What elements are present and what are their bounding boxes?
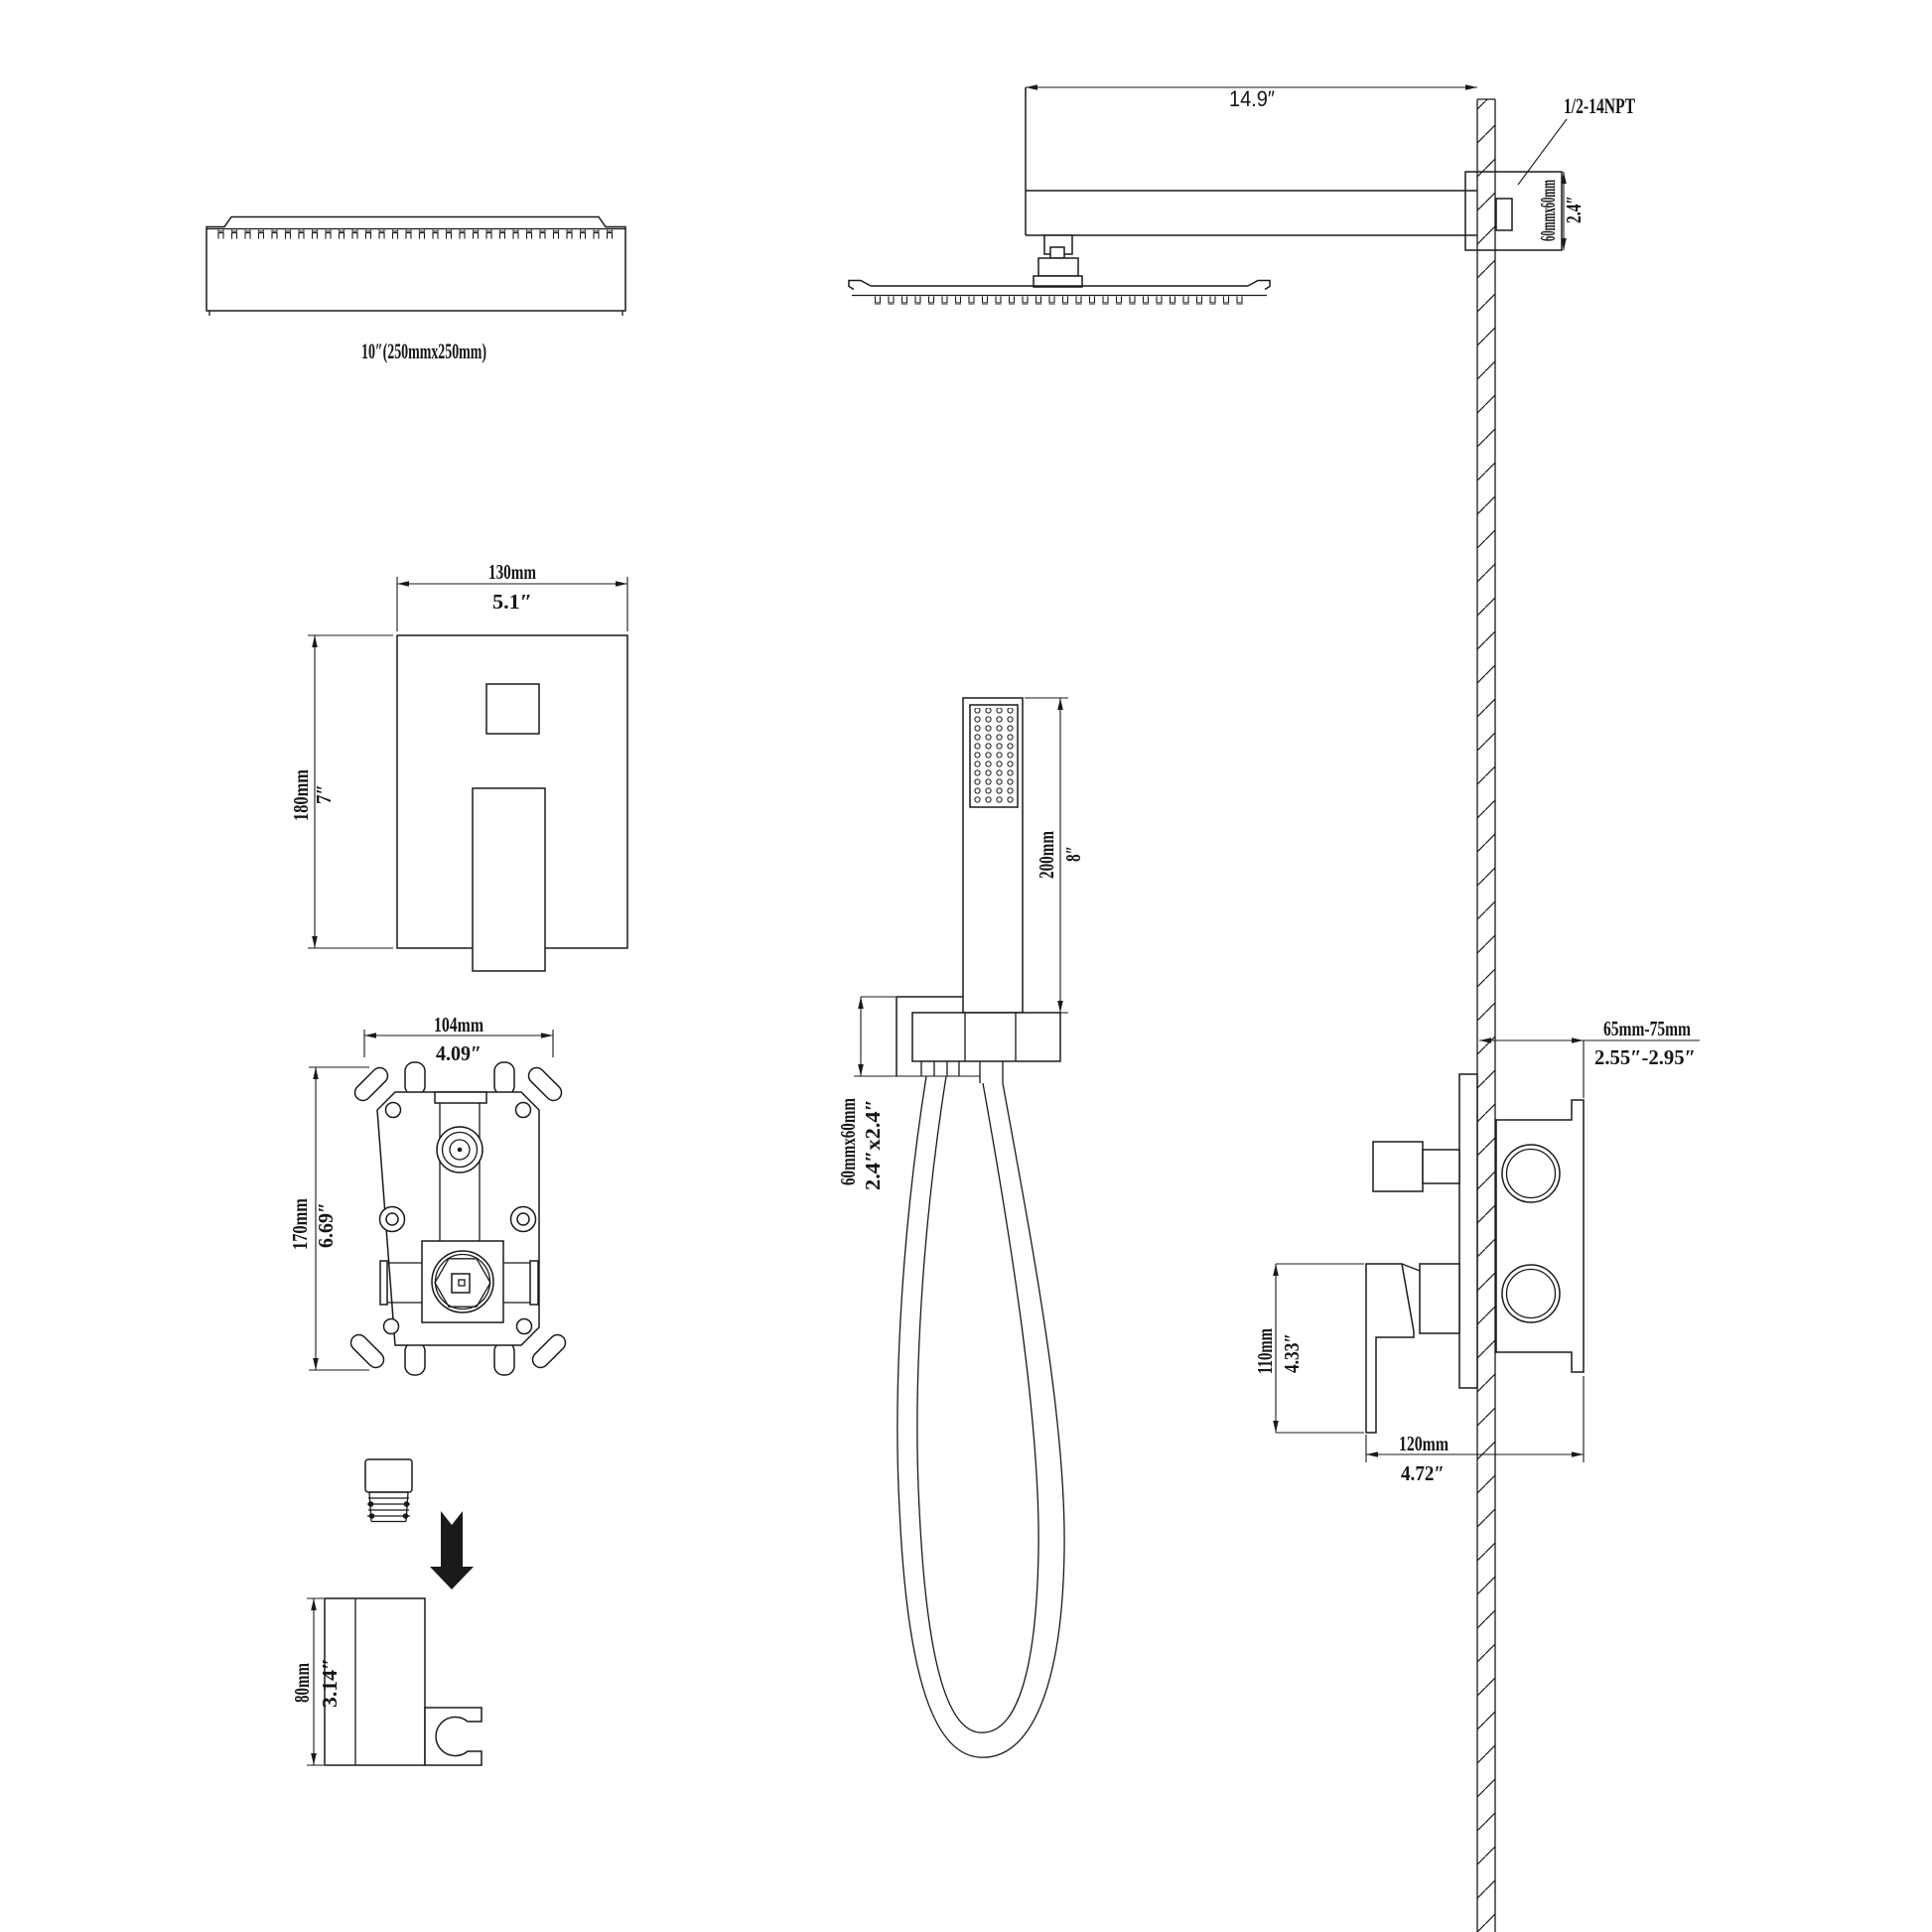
npt-thread-label: 1/2-14NPT	[1564, 93, 1635, 118]
valve-height-mm-label: 170mm	[288, 1198, 312, 1250]
tab-top-1	[405, 1062, 425, 1095]
diverter-button	[486, 684, 539, 734]
valve-height-in-label: 6.69″	[314, 1202, 338, 1248]
tab-top-2	[494, 1062, 514, 1095]
hose-nut-left	[921, 1061, 959, 1076]
wand-length-mm-label: 200mm	[1035, 831, 1058, 879]
arm-joint-cone	[1038, 258, 1078, 276]
handle-height-in-label: 4.33″	[1280, 1333, 1304, 1373]
depth-in-label: 2.55″-2.95″	[1594, 1045, 1696, 1069]
valve-width-in-label: 4.09″	[436, 1041, 482, 1065]
screw-hole-top-left	[386, 1103, 401, 1118]
hose-inner-line	[917, 1076, 1038, 1732]
valve-width-mm-label: 104mm	[434, 1013, 483, 1036]
adapter-oring-dot-3	[369, 1513, 375, 1519]
adapter-cap	[365, 1459, 412, 1492]
arm-length-label: 14.9″	[1229, 86, 1275, 111]
showerhead-nozzle-row	[213, 230, 615, 239]
mount-hole-left-inner	[386, 1213, 398, 1225]
tab-bottom-left	[347, 1331, 387, 1371]
adapter-oring-dot-4	[403, 1513, 409, 1519]
mixer-diverter-knob	[1373, 1142, 1423, 1191]
figure-mixer-side-view: 65mm-75mm 2.55″-2.95″ 110mm 4.33″ 120mm …	[1253, 1017, 1700, 1485]
top-port-center-dot	[458, 1148, 463, 1153]
tab-bottom-right	[529, 1331, 569, 1371]
right-pipe-cap	[530, 1261, 538, 1305]
flange-size-in-label: 2.4″	[1562, 196, 1586, 223]
hose-nut-right	[980, 1061, 1003, 1083]
mount-hole-right-inner	[517, 1213, 529, 1225]
outlet-connector-block	[912, 1013, 1060, 1061]
left-pipe-cap	[380, 1261, 387, 1305]
npt-nipple	[1496, 199, 1512, 230]
shower-arm-bar	[1026, 191, 1477, 235]
outlet-size-in-label: 2.4″x2.4″	[861, 1099, 885, 1190]
mixer-handle-neck-line	[1402, 1264, 1420, 1271]
adapter-oring-dot-2	[404, 1501, 410, 1507]
mixer-handle-base	[1420, 1264, 1459, 1333]
figure-holder-bracket: 80mm 3.14″	[290, 1459, 482, 1765]
mixer-width-in-label: 4.72″	[1401, 1461, 1445, 1485]
mixer-lever-handle	[1366, 1264, 1414, 1433]
mixer-width-mm-label: 120mm	[1399, 1432, 1449, 1455]
trim-width-mm-label: 130mm	[488, 560, 536, 584]
insert-direction-arrow-icon	[430, 1511, 474, 1589]
figure-valve-trim-plate: 130mm 5.1″ 180mm 7″	[289, 560, 627, 971]
screw-hole-bottom-left	[384, 1319, 399, 1334]
npt-leader-line	[1518, 119, 1567, 185]
showerhead-size-label: 10″(250mmx250mm)	[361, 339, 486, 363]
screw-hole-top-right	[516, 1103, 531, 1118]
bracket-clamp-c-shape	[425, 1708, 482, 1765]
tab-top-left	[351, 1064, 391, 1104]
wand-length-in-label: 8″	[1061, 846, 1085, 862]
screw-hole-bottom-right	[517, 1319, 532, 1334]
figure-handshower-and-hose: 200mm 8″ 60mmx60mm 2.4″x2.4″	[836, 698, 1085, 1757]
handle-height-mm-label: 110mm	[1253, 1328, 1277, 1374]
bracket-height-mm-label: 80mm	[290, 1663, 314, 1703]
cartridge-stem-square	[452, 1274, 470, 1293]
handshower-nozzle-grid	[973, 708, 1017, 805]
tab-bottom-2	[494, 1342, 514, 1375]
mixer-knob-bottom-outer	[1502, 1265, 1560, 1322]
trim-height-in-label: 7″	[312, 784, 336, 804]
trim-handle	[473, 788, 545, 971]
figure-shower-arm-assembly: 14.9″ 60mmx60mm 2.4″ 1/2-14NPT	[849, 86, 1635, 305]
technical-drawing-page: 10″(250mmx250mm) 14.9″ 60mmx60mm 2.4″ 1/…	[0, 0, 1932, 1932]
figure-showerhead-side-view: 10″(250mmx250mm)	[207, 217, 625, 364]
figure-rough-in-valve: 104mm 4.09″ 170mm 6.69″	[288, 1013, 569, 1375]
wall-section	[1477, 99, 1495, 1932]
mixer-valve-body	[1496, 1100, 1584, 1372]
head-plate-nozzle-row	[872, 297, 1244, 305]
mixer-knob-top-outer	[1502, 1145, 1560, 1202]
bracket-height-in-label: 3.14″	[318, 1658, 342, 1708]
hose-outer-line	[897, 1076, 1064, 1757]
outlet-size-mm-label: 60mmx60mm	[836, 1098, 860, 1185]
mixer-escutcheon-plate	[1459, 1074, 1477, 1388]
mixer-diverter-stem	[1423, 1150, 1459, 1183]
arm-joint-collar	[1050, 247, 1064, 258]
trim-width-in-label: 5.1″	[492, 590, 532, 614]
tab-bottom-1	[405, 1342, 425, 1375]
flange-size-mm-label: 60mmx60mm	[1536, 180, 1560, 241]
trim-height-mm-label: 180mm	[289, 769, 313, 821]
depth-mm-label: 65mm-75mm	[1603, 1017, 1691, 1040]
wall-hatch-fill	[1477, 99, 1495, 1932]
shower-system-technical-drawing: 10″(250mmx250mm) 14.9″ 60mmx60mm 2.4″ 1/…	[0, 0, 1932, 1932]
channel-top-cap	[435, 1092, 486, 1103]
tab-top-right	[525, 1064, 565, 1104]
adapter-oring-dot-1	[368, 1501, 374, 1507]
